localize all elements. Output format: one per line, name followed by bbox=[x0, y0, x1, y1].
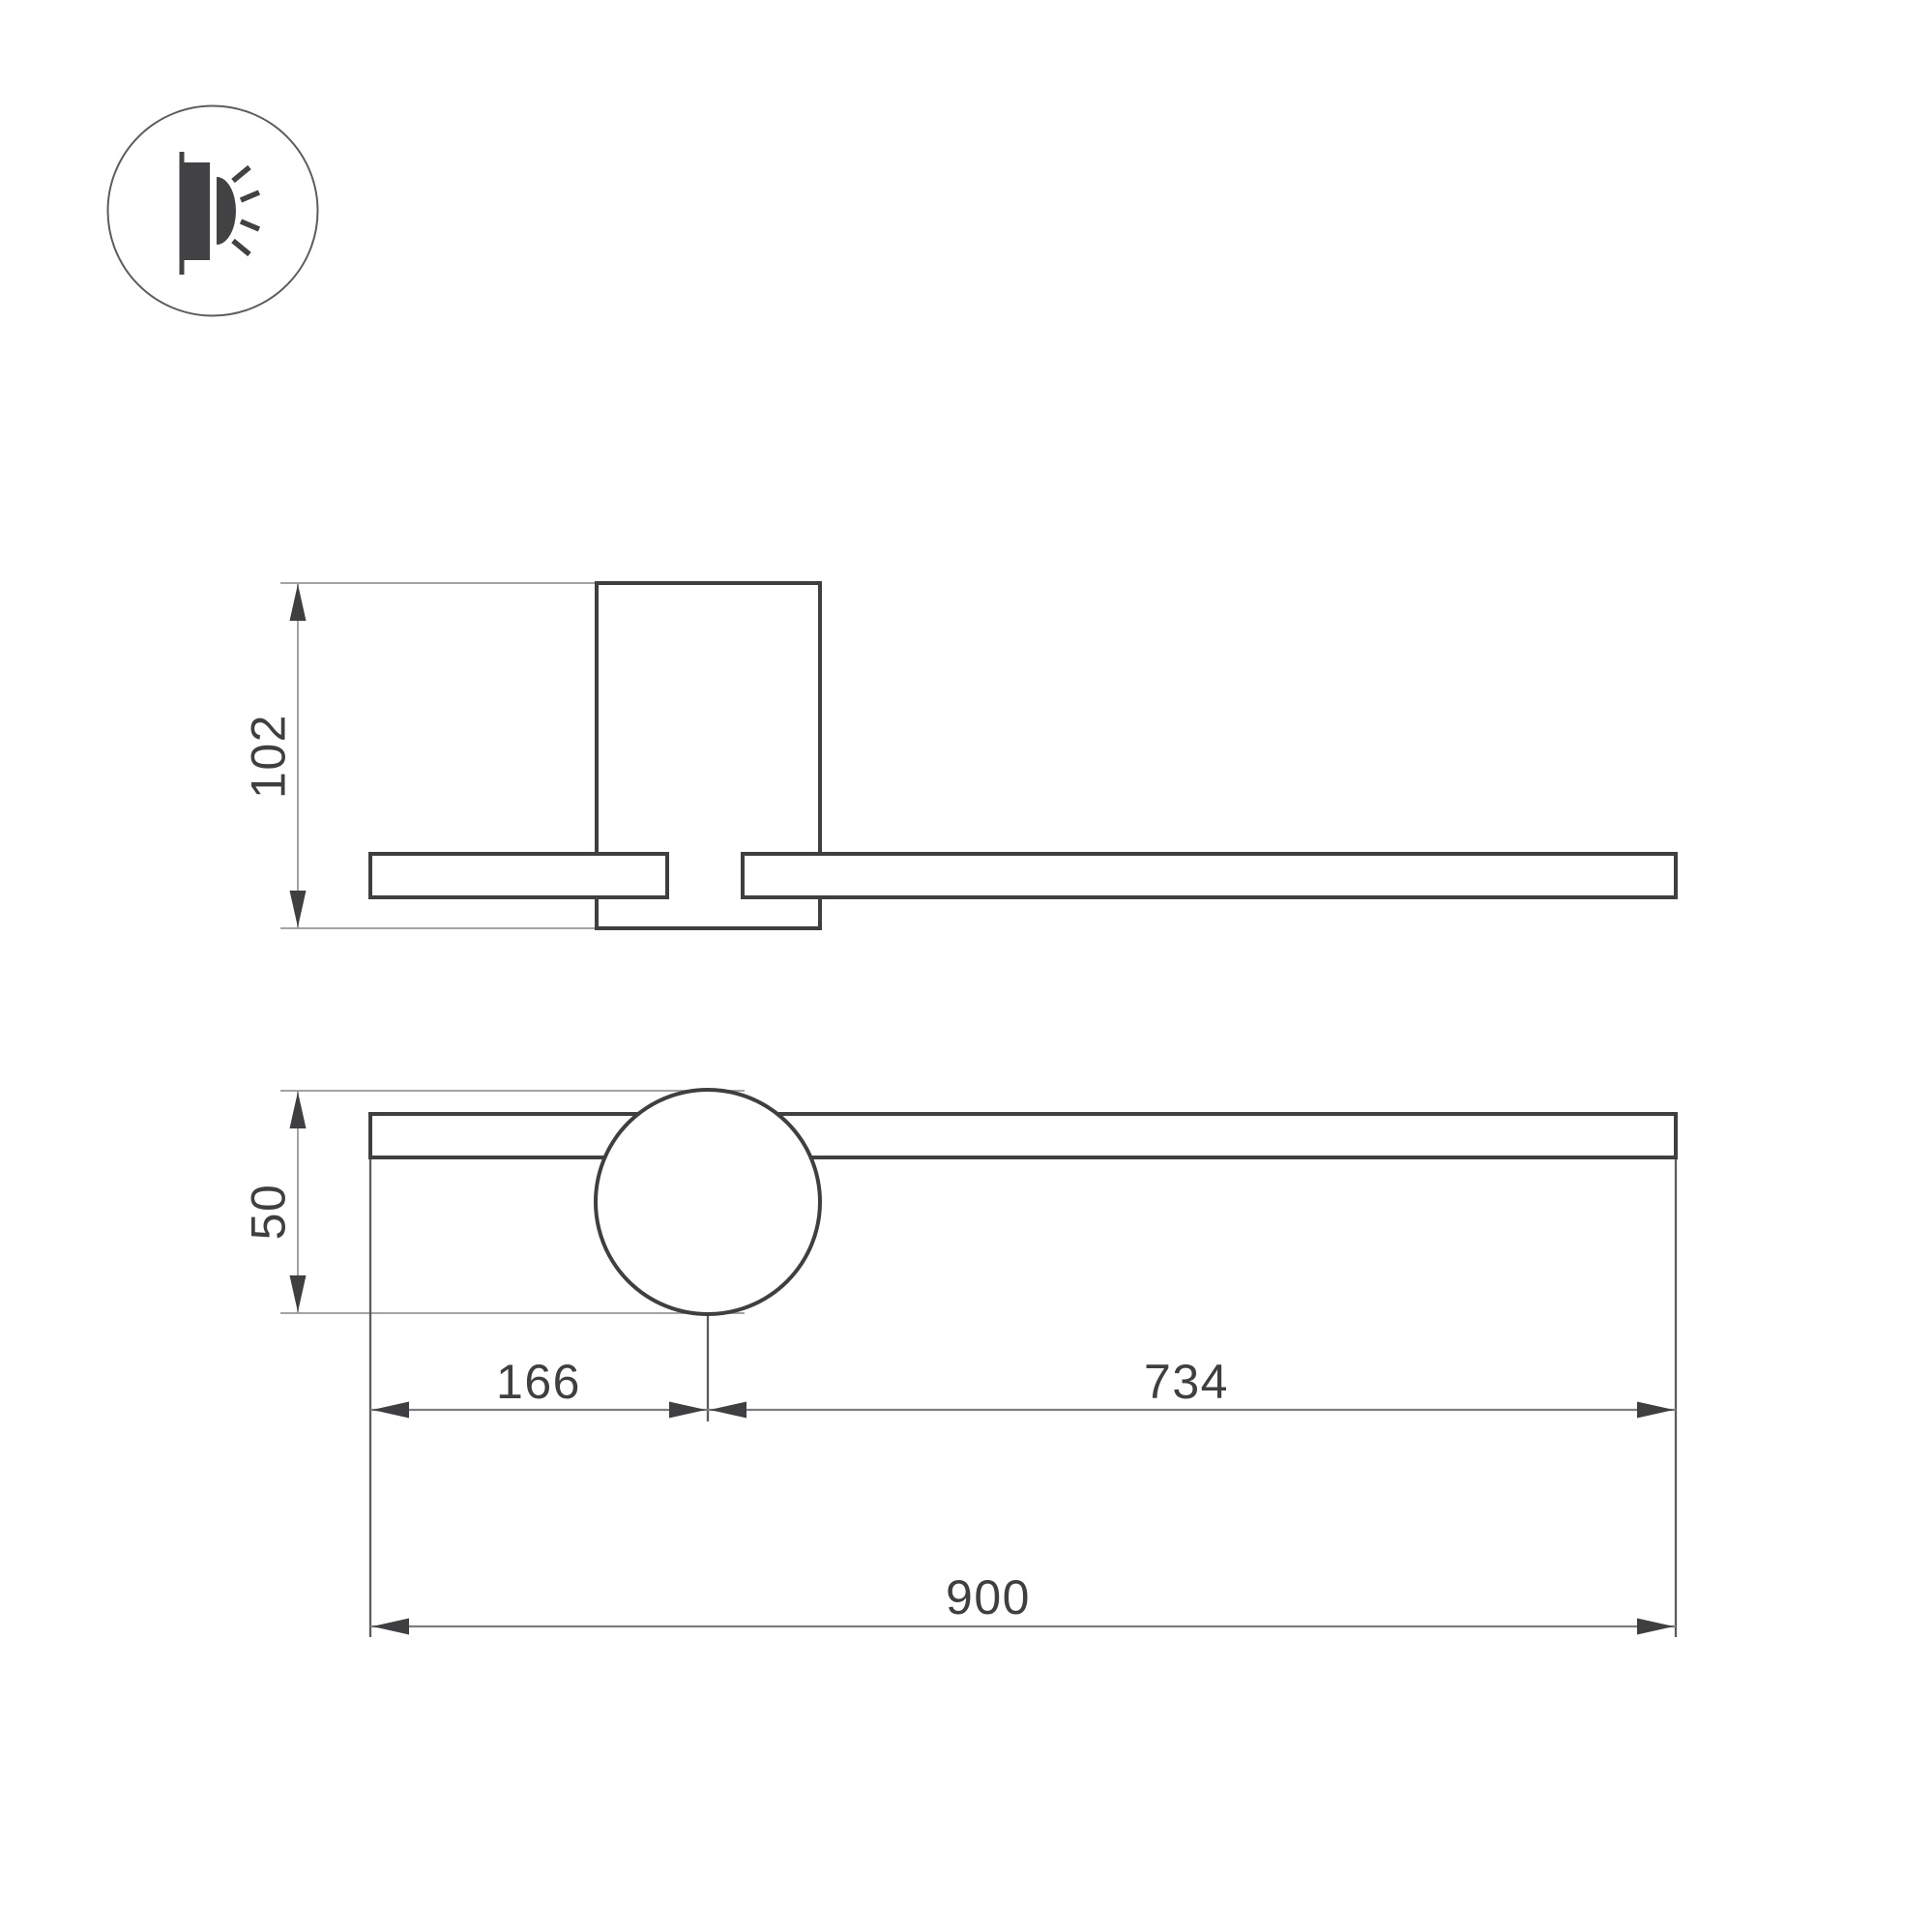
label-head-diameter: 50 bbox=[242, 1184, 296, 1241]
drawing-background bbox=[0, 0, 1932, 1932]
front-view-bar bbox=[370, 1114, 1676, 1157]
side-view-right-bar bbox=[743, 854, 1676, 897]
side-view-left-bar bbox=[370, 854, 667, 897]
technical-drawing: 102 50 166 734 900 bbox=[0, 0, 1932, 1932]
front-view-lamp-head bbox=[596, 1090, 820, 1314]
label-left-segment: 166 bbox=[496, 1355, 581, 1409]
label-total-length: 900 bbox=[946, 1570, 1031, 1625]
icon-circle-border bbox=[108, 106, 318, 316]
label-side-height: 102 bbox=[242, 714, 296, 799]
wall-light-icon bbox=[108, 106, 318, 316]
label-right-segment: 734 bbox=[1144, 1355, 1229, 1409]
icon-lamp-body bbox=[183, 162, 210, 260]
